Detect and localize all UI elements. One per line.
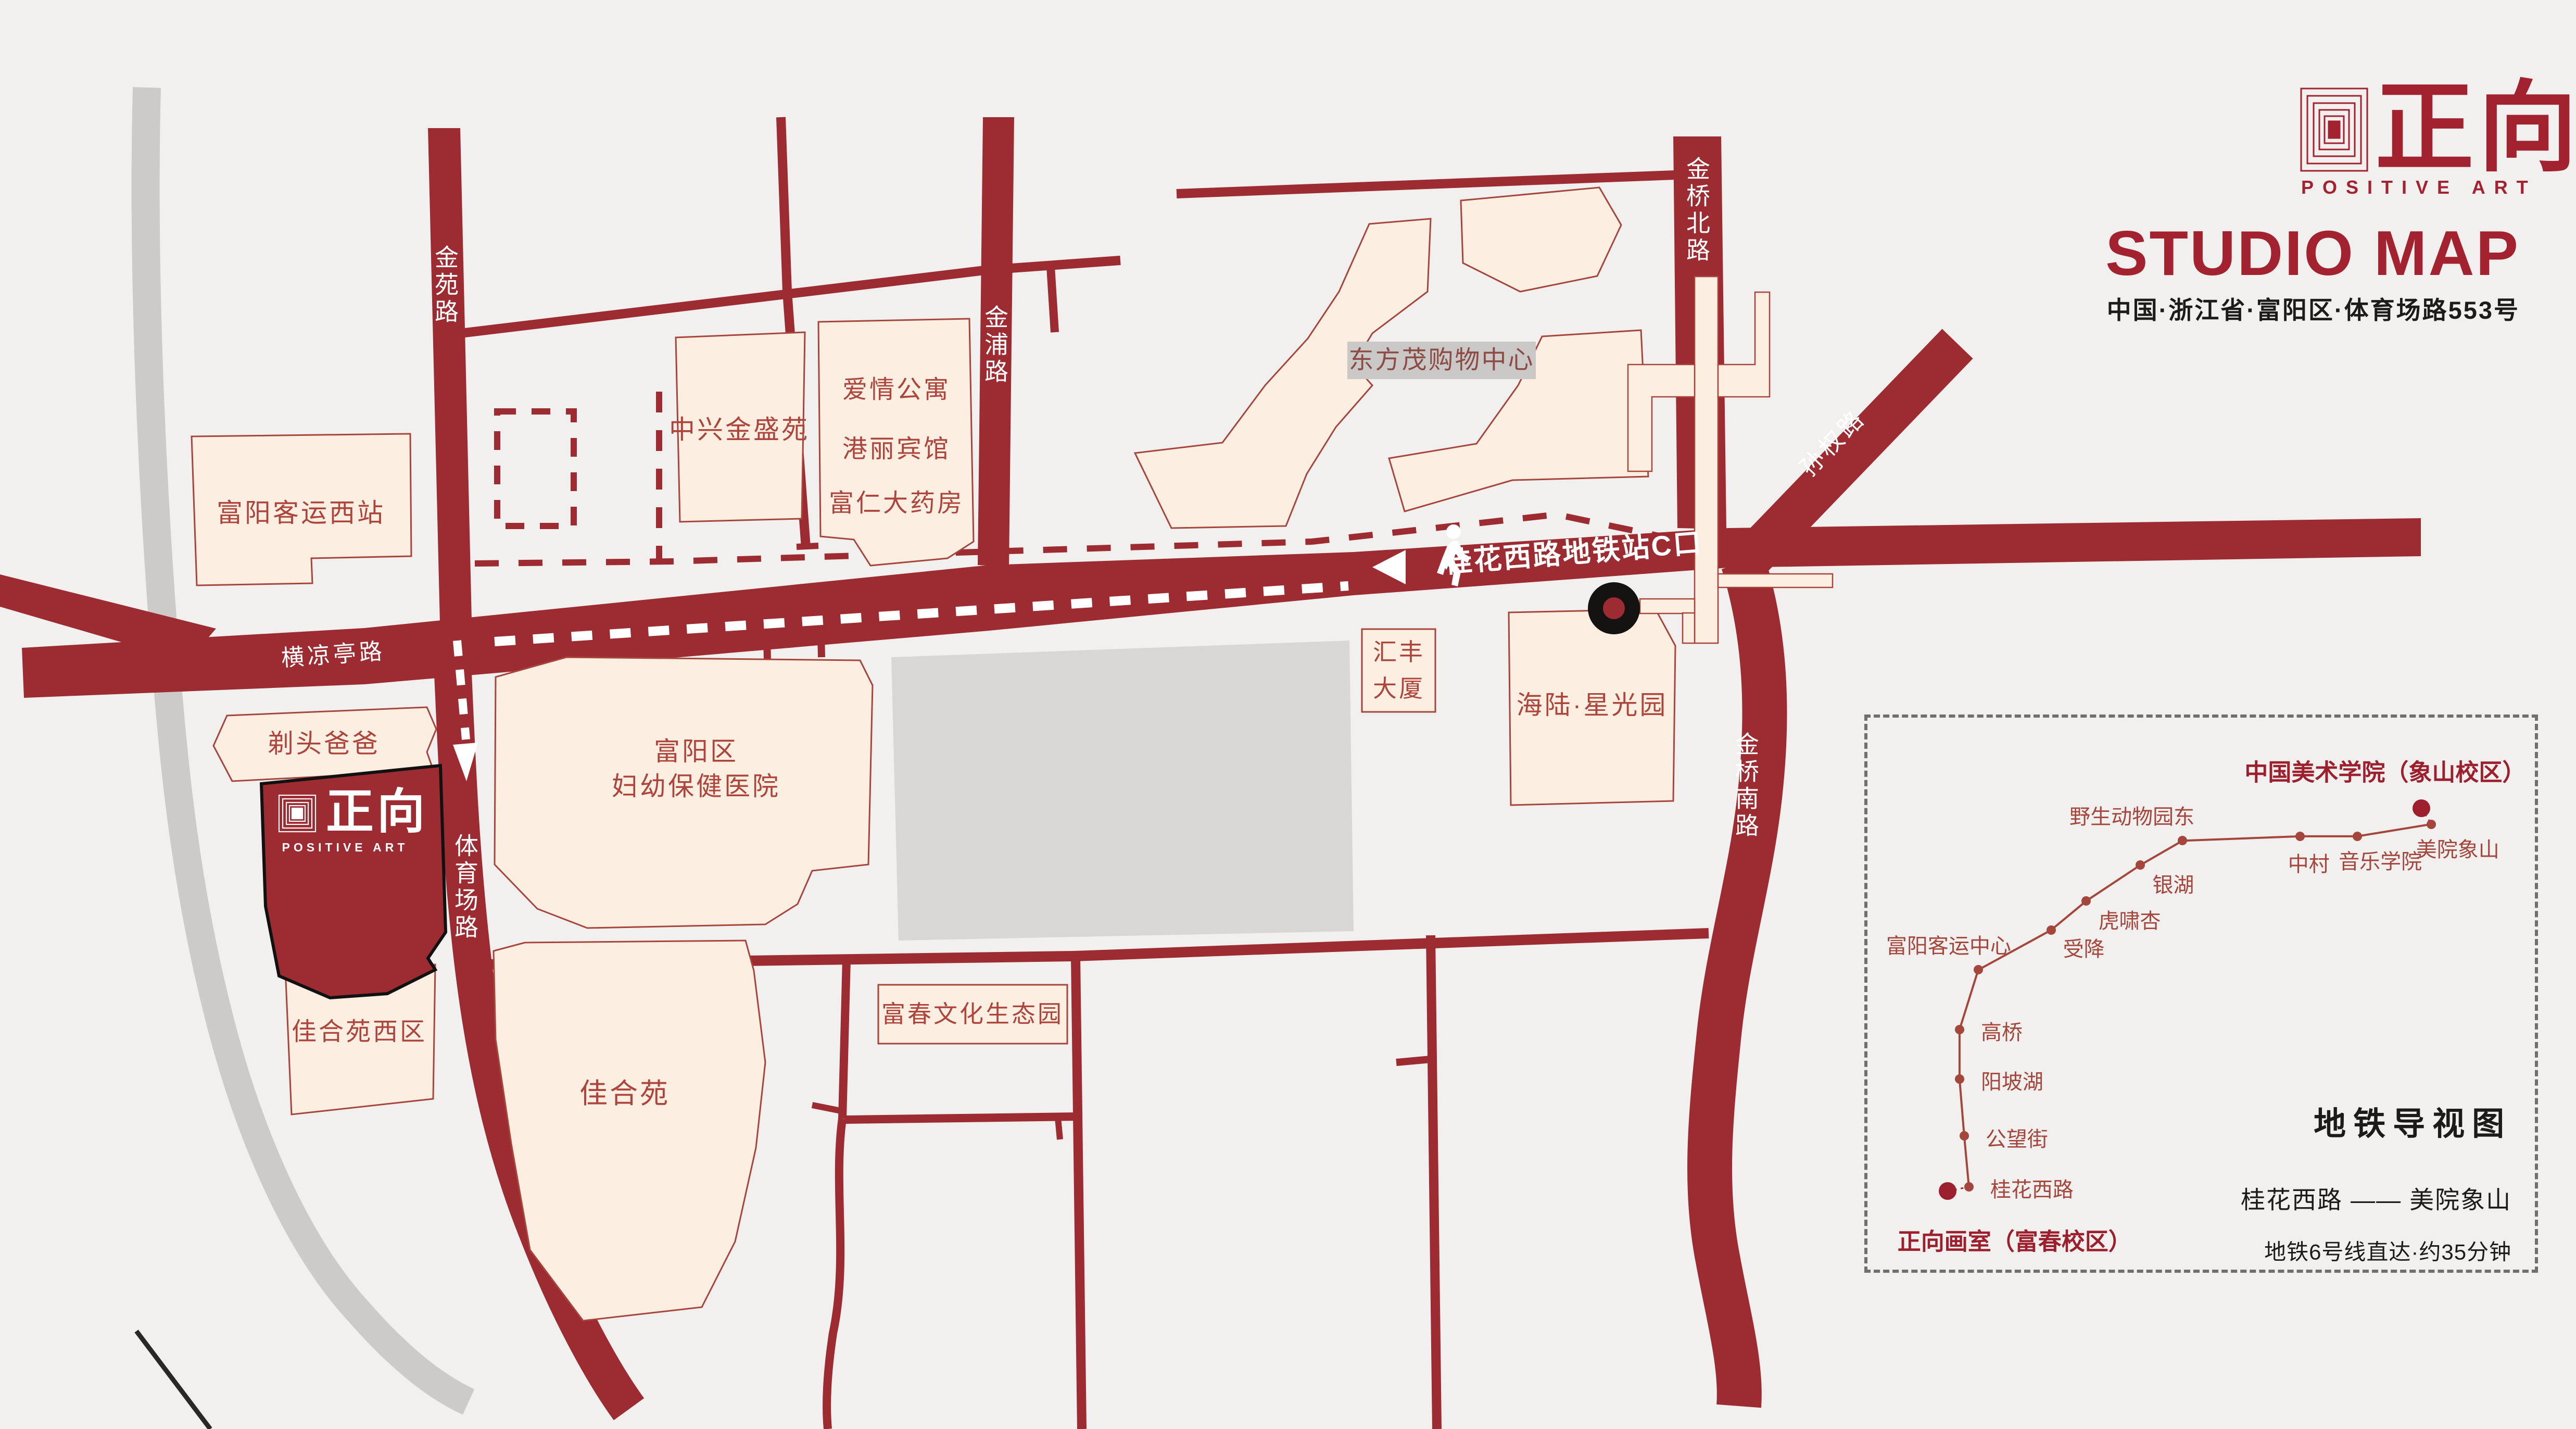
metro-station-dot <box>1960 1131 1969 1140</box>
metro-station-label: 音乐学院 <box>2339 845 2422 875</box>
studio-map-poster: 金苑路 金浦路 金桥北路 孙权路 横凉亭路 体育场路 金桥南路 桂花西路地铁站C… <box>0 0 2576 1429</box>
label-jiaheyuan-west: 佳合苑西区 <box>292 1020 427 1045</box>
road-label-jinqiao-south: 金桥南路 <box>1734 732 1758 840</box>
metro-station-label: 桂花西路 <box>1990 1173 2074 1203</box>
metro-station-dot <box>2427 820 2436 829</box>
metro-station-label: 银湖 <box>2152 868 2194 898</box>
label-apartment-2: 港丽宾馆 <box>842 437 951 462</box>
label-hospital-1: 富阳区 <box>654 738 738 764</box>
label-hospital-2: 妇幼保健医院 <box>612 773 780 799</box>
label-huifeng-2: 大厦 <box>1373 676 1425 700</box>
page-title: STUDIO MAP <box>2100 221 2520 285</box>
metro-exit-marker <box>1588 582 1640 634</box>
label-apartment-3: 富仁大药房 <box>829 491 964 516</box>
road-label-jinqiao-north: 金桥北路 <box>1685 156 1709 265</box>
road-jinyuan <box>428 128 472 623</box>
label-apartment-1: 爱情公寓 <box>842 378 951 403</box>
metro-station-label: 高桥 <box>1981 1016 2023 1046</box>
metro-station-label: 虎啸杏 <box>2099 904 2161 934</box>
metro-station-label: 公望街 <box>1986 1122 2048 1152</box>
metro-station-label: 中村 <box>2288 847 2330 878</box>
metro-panel-title: 地铁导视图 <box>2314 1097 2511 1144</box>
metro-terminal-label: 正向画室（富春校区） <box>1898 1222 2132 1256</box>
studio-logo-en: POSITIVE ART <box>279 842 411 854</box>
metro-station-dot <box>1955 1025 1964 1034</box>
label-dongfangmao: 东方茂购物中心 <box>1348 348 1534 373</box>
road-label-jinyuan: 金苑路 <box>433 245 457 326</box>
building-mall-b <box>1461 187 1621 292</box>
metro-station-dot <box>2081 896 2091 906</box>
metro-station-dot <box>1974 965 1983 974</box>
road-jinqiao-south <box>1710 562 1765 1406</box>
metro-station-label: 受降 <box>2063 932 2105 962</box>
studio-address: 中国·浙江省·富阳区·体育场路553号 <box>2100 298 2520 322</box>
label-huifeng-1: 汇丰 <box>1373 640 1425 664</box>
metro-station-dot <box>1964 1182 1974 1192</box>
metro-panel-note: 地铁6号线直达·约35分钟 <box>2264 1234 2511 1266</box>
brand-name-en: POSITIVE ART <box>2301 178 2516 197</box>
metro-guide-panel: 地铁导视图 桂花西路 —— 美院象山 地铁6号线直达·约35分钟 桂花西路公望街… <box>1864 714 2538 1273</box>
metro-station-dot <box>2178 836 2187 845</box>
road-label-tiyuchang: 体育场路 <box>453 833 477 942</box>
metro-station-dot <box>1955 1074 1964 1084</box>
road-label-jinpu: 金浦路 <box>983 305 1007 386</box>
label-fuyang-west-station: 富阳客运西站 <box>217 500 385 526</box>
metro-terminal-dot <box>1939 1182 1956 1200</box>
metro-station-dot <box>2136 860 2145 870</box>
label-fuchun-park: 富春文化生态园 <box>881 1002 1064 1026</box>
metro-station-dot <box>2353 832 2362 841</box>
black-diagonal <box>136 1331 210 1429</box>
metro-panel-route: 桂花西路 —— 美院象山 <box>2241 1180 2511 1216</box>
label-jiaheyuan: 佳合苑 <box>579 1080 670 1108</box>
label-zhongxing: 中兴金盛苑 <box>669 417 810 443</box>
studio-logo-cn: 正向 <box>326 787 428 835</box>
metro-station-label: 阳坡湖 <box>1981 1065 2043 1095</box>
metro-terminal-dot <box>2413 799 2430 817</box>
brand-logo-icon <box>2301 89 2367 171</box>
label-hailu: 海陆·星光园 <box>1517 692 1668 718</box>
metro-terminal-label: 中国美术学院（象山校区） <box>2244 753 2526 787</box>
metro-station-label: 野生动物园东 <box>2069 800 2194 830</box>
metro-station-label: 美院象山 <box>2416 833 2499 863</box>
metro-station-label: 富阳客运中心 <box>1886 929 2011 959</box>
brand-name-cn: 正向 <box>2375 78 2576 177</box>
metro-station-dot <box>2047 925 2056 935</box>
gray-lot <box>891 641 1354 941</box>
label-titou: 剃头爸爸 <box>268 731 380 757</box>
metro-station-dot <box>2295 832 2305 841</box>
